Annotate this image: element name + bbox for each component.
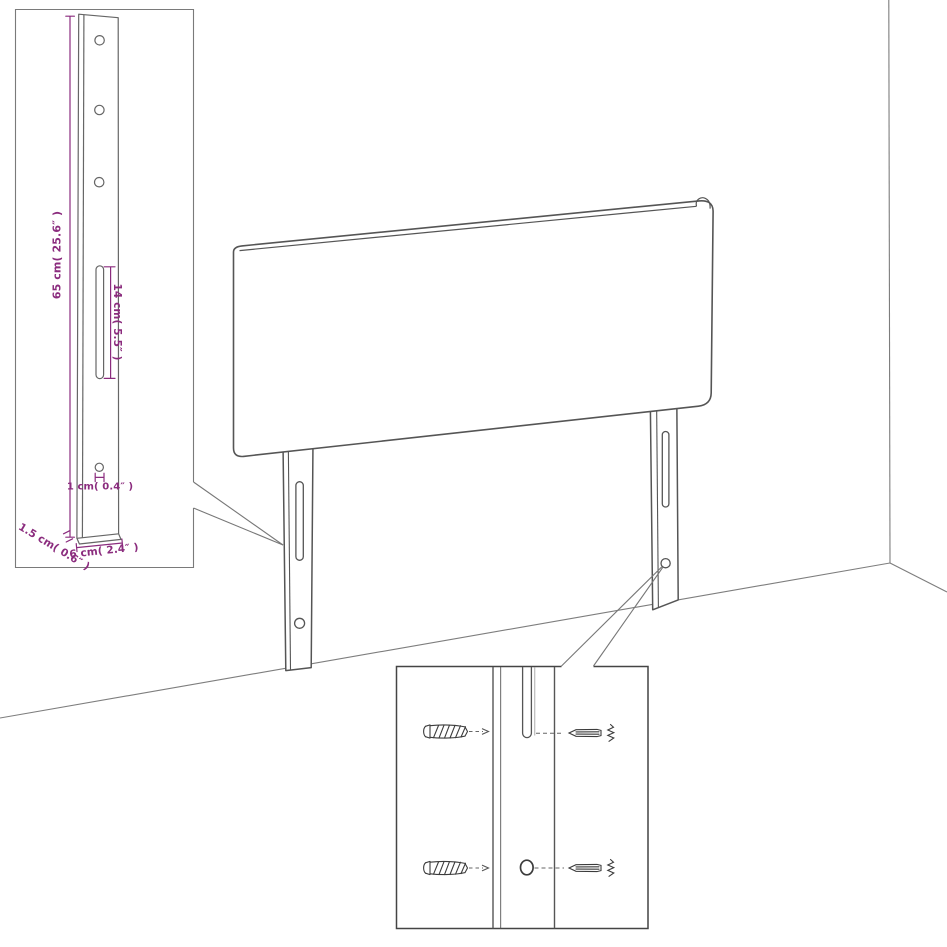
headboard-panel [234, 201, 714, 457]
hardware-callout-wedge [562, 567, 663, 666]
headboard [234, 198, 714, 457]
dimension-label-hole: 1 cm( 0.4″ ) [67, 482, 133, 493]
detail-leg-hole-3 [95, 178, 104, 187]
left-leg-slot [296, 482, 303, 561]
dim-line-height [66, 16, 75, 537]
dim-bracket-hole [95, 473, 104, 481]
floor-line-left [0, 563, 890, 718]
detail-leg-hole-1 [95, 36, 104, 45]
wall-plug-drawing-row2 [569, 860, 614, 877]
detail-leg-side-line [82, 15, 84, 538]
detail-leg-slot [96, 266, 104, 379]
line-art [0, 0, 947, 947]
dimension-label-height: 65 cm( 25.6″ ) [51, 211, 64, 299]
detail-leg-small-hole [95, 463, 103, 471]
wall-corner-line [889, 0, 890, 563]
left-leg-hole [295, 618, 305, 628]
detail-leg-hole-2 [95, 105, 104, 114]
right-leg [650, 399, 678, 610]
right-leg-slot [662, 432, 669, 508]
screw-drawing-row2 [424, 861, 468, 874]
hardware-callout [397, 667, 649, 929]
diagram-canvas: 65 cm( 25.6″ ) 14 cm( 5.5″ ) 1 cm( 0.4″ … [0, 0, 947, 947]
detail-strip-hole [521, 860, 534, 875]
dim-ticks-thickness [64, 531, 73, 542]
wedge-line-b [594, 567, 663, 666]
screw-drawing-row1 [424, 725, 468, 738]
left-leg [283, 441, 313, 671]
right-leg-hole [661, 559, 670, 568]
floor-line-right [890, 563, 947, 592]
wall-plug-drawing-row1 [569, 725, 614, 742]
wedge-line-a [562, 567, 663, 666]
detail-strip-slot [523, 667, 532, 738]
dimension-label-slot: 14 cm( 5.5″ ) [111, 284, 123, 361]
